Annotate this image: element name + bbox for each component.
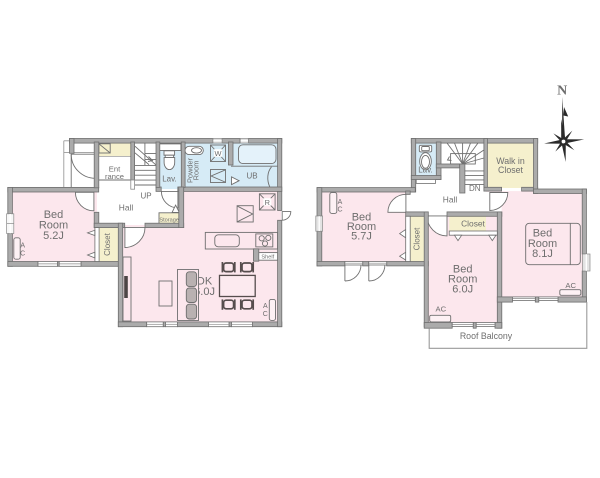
svg-text:5.2J: 5.2J [43, 230, 64, 242]
svg-text:5.7J: 5.7J [351, 231, 372, 243]
svg-text:UB: UB [246, 172, 257, 181]
svg-text:Storage: Storage [159, 217, 179, 223]
svg-text:8.1J: 8.1J [532, 248, 553, 260]
svg-text:C: C [20, 251, 25, 258]
svg-text:DN: DN [469, 184, 481, 193]
svg-text:C: C [263, 311, 268, 318]
svg-text:AC: AC [436, 305, 447, 314]
svg-text:C: C [337, 207, 342, 214]
svg-text:A: A [20, 243, 25, 250]
svg-text:Closet: Closet [103, 232, 112, 255]
svg-text:R: R [265, 198, 270, 207]
svg-text:rance: rance [105, 172, 124, 181]
svg-text:Closet: Closet [498, 165, 523, 175]
svg-text:Roof Balcony: Roof Balcony [460, 331, 513, 341]
svg-text:Shelf: Shelf [261, 255, 274, 261]
svg-text:Closet: Closet [461, 219, 485, 229]
svg-text:Lav.: Lav. [162, 174, 177, 183]
svg-text:Closet: Closet [413, 227, 422, 250]
svg-text:Hall: Hall [119, 202, 134, 212]
svg-text:AC: AC [565, 281, 576, 290]
svg-text:Lav.: Lav. [418, 166, 433, 175]
svg-text:Hall: Hall [443, 195, 458, 205]
svg-text:W: W [215, 149, 222, 158]
svg-text:UP: UP [140, 191, 151, 200]
svg-text:N: N [557, 84, 567, 99]
svg-text:PowderRoom: PowderRoom [186, 157, 201, 183]
svg-text:A: A [338, 199, 343, 206]
svg-text:6.0J: 6.0J [452, 284, 473, 296]
svg-text:A: A [263, 303, 268, 310]
